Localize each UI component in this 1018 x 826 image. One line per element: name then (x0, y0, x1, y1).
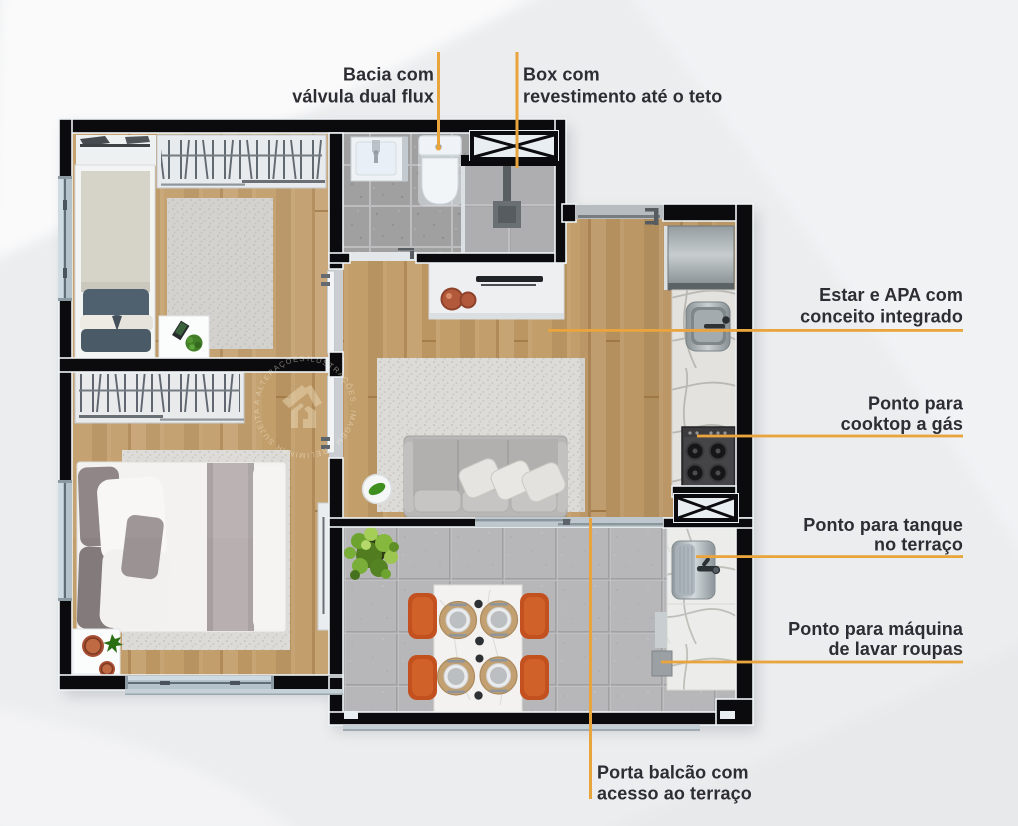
svg-text:Ponto para tanque: Ponto para tanque (803, 515, 963, 535)
svg-text:Bacia com: Bacia com (343, 65, 434, 85)
svg-text:válvula dual flux: válvula dual flux (292, 87, 434, 107)
svg-text:acesso ao terraço: acesso ao terraço (597, 784, 752, 804)
svg-text:Porta balcão com: Porta balcão com (597, 763, 749, 783)
svg-text:Box com: Box com (523, 65, 600, 85)
svg-text:Ponto para: Ponto para (868, 394, 964, 414)
svg-text:de lavar roupas: de lavar roupas (828, 639, 963, 659)
svg-text:no terraço: no terraço (874, 535, 963, 555)
svg-text:Estar e APA com: Estar e APA com (819, 285, 963, 305)
svg-text:conceito integrado: conceito integrado (800, 307, 963, 327)
svg-text:cooktop a gás: cooktop a gás (841, 414, 963, 434)
svg-text:revestimento até o teto: revestimento até o teto (523, 87, 722, 107)
svg-text:Ponto para máquina: Ponto para máquina (788, 619, 964, 639)
